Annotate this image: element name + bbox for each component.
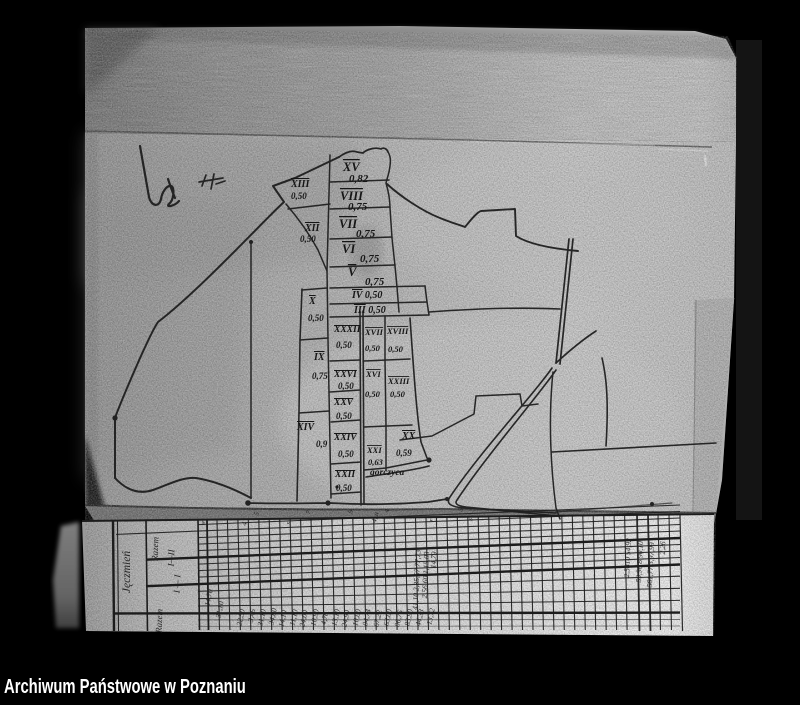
svg-text:0,75: 0,75 [365, 276, 385, 288]
svg-text:XXIV: XXIV [333, 433, 357, 443]
svg-text:0,50: 0,50 [308, 313, 324, 323]
svg-text:2,26: 2,26 [658, 541, 668, 555]
svg-text:XIII: XIII [290, 179, 310, 190]
svg-text:14,79: 14,79 [429, 551, 439, 569]
svg-text:XXXII: XXXII [333, 325, 361, 335]
svg-text:0,50: 0,50 [390, 389, 406, 399]
svg-text:0,75: 0,75 [356, 228, 376, 240]
svg-text:0,75: 0,75 [360, 253, 380, 265]
svg-text:XXIII: XXIII [387, 376, 410, 386]
svg-text:0,75: 0,75 [348, 201, 368, 213]
svg-text:I — I: I — I [172, 573, 183, 594]
svg-text:VI: VI [342, 242, 356, 256]
svg-text:XXV: XXV [333, 398, 354, 408]
svg-text:XVIII: XVIII [386, 326, 409, 336]
svg-text:0,50: 0,50 [336, 483, 352, 493]
svg-text:Razem: Razem [154, 608, 165, 634]
svg-text:Razem: Razem [150, 536, 161, 562]
svg-text:III 0,50: III 0,50 [353, 305, 386, 316]
svg-text:IX: IX [313, 352, 325, 363]
svg-text:0,9: 0,9 [316, 439, 328, 449]
svg-text:XVII: XVII [364, 327, 384, 337]
svg-text:XXVI: XXVI [333, 370, 357, 380]
svg-text:0,75: 0,75 [312, 371, 328, 381]
svg-text:Jęczmień: Jęczmień [121, 551, 133, 593]
svg-text:gorczyca: gorczyca [369, 468, 405, 478]
svg-text:0,50: 0,50 [338, 381, 354, 391]
svg-text:I—II: I—II [166, 548, 177, 567]
svg-text:0,50: 0,50 [336, 411, 352, 421]
svg-text:XX: XX [401, 431, 416, 442]
svg-text:XV: XV [342, 160, 361, 174]
svg-text:0,50: 0,50 [338, 449, 354, 459]
svg-text:0,50: 0,50 [365, 389, 381, 399]
svg-text:XXI: XXI [366, 445, 382, 455]
svg-text:XII: XII [304, 223, 321, 234]
svg-text:XXII: XXII [334, 470, 355, 480]
svg-text:XVI: XVI [365, 369, 381, 379]
svg-text:XIV: XIV [296, 422, 316, 433]
svg-text:0,50: 0,50 [291, 191, 307, 201]
svg-text:0,63: 0,63 [368, 457, 384, 467]
svg-text:0,50: 0,50 [388, 344, 404, 354]
svg-text:X: X [308, 296, 316, 307]
svg-text:0,82: 0,82 [349, 173, 369, 185]
svg-text:0,50: 0,50 [336, 340, 352, 350]
svg-text:0,50: 0,50 [365, 343, 381, 353]
svg-text:0,50: 0,50 [300, 234, 316, 244]
svg-text:IV 0,50: IV 0,50 [351, 290, 382, 301]
svg-text:0,59: 0,59 [396, 448, 412, 458]
